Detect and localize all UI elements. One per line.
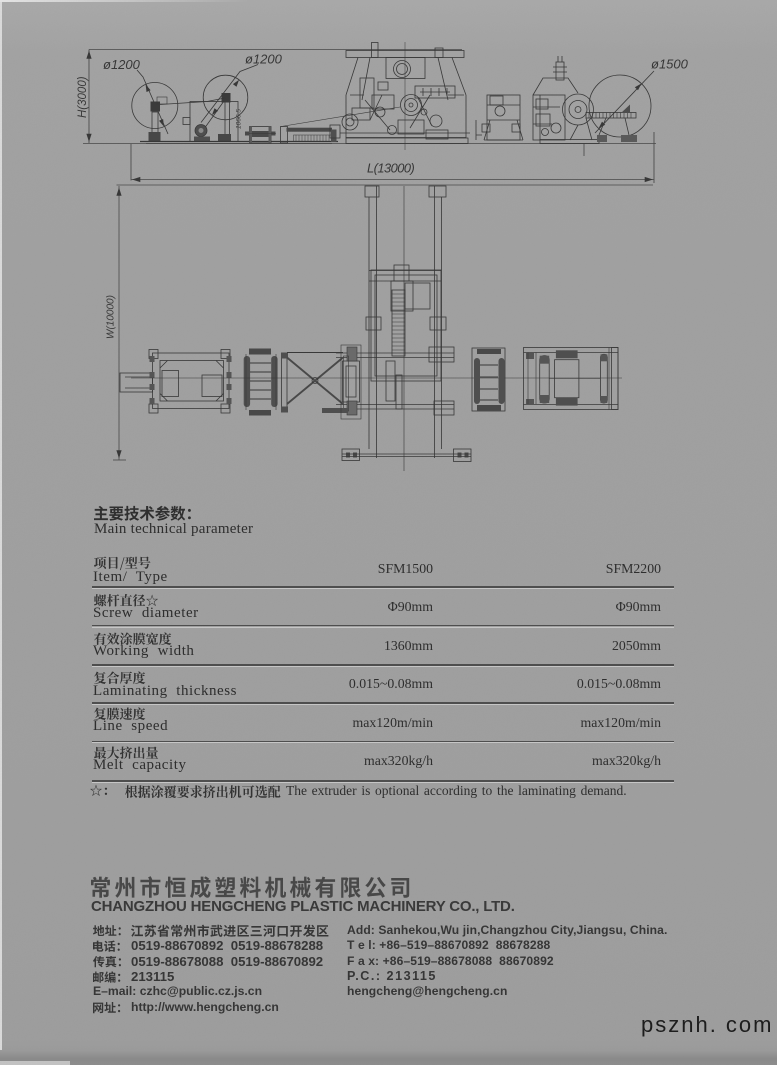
svg-text:ø1500: ø1500 [651, 57, 689, 72]
svg-text:ø1200: ø1200 [245, 52, 283, 67]
svg-text:W(10000): W(10000) [106, 295, 117, 339]
svg-text:1066.5: 1066.5 [236, 109, 243, 129]
svg-text:L(13000): L(13000) [367, 161, 414, 176]
svg-text:H(3000): H(3000) [77, 76, 89, 118]
svg-text:ø1200: ø1200 [103, 57, 141, 72]
